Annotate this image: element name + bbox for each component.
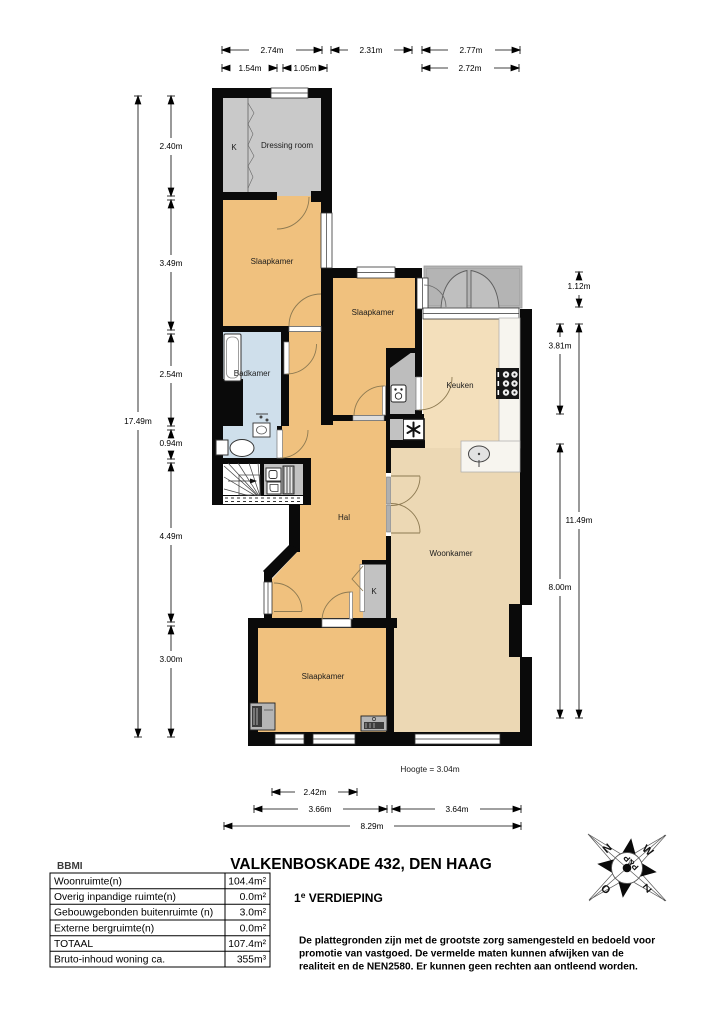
svg-text:2.42m: 2.42m bbox=[303, 787, 326, 797]
svg-text:2.31m: 2.31m bbox=[359, 45, 382, 55]
svg-text:Keuken: Keuken bbox=[446, 381, 473, 390]
svg-text:3.0m²: 3.0m² bbox=[240, 908, 267, 919]
svg-text:VALKENBOSKADE 432, DEN HAAG: VALKENBOSKADE 432, DEN HAAG bbox=[230, 856, 492, 873]
svg-text:Badkamer: Badkamer bbox=[234, 369, 271, 378]
svg-text:1.12m: 1.12m bbox=[567, 281, 590, 291]
svg-text:1.54m: 1.54m bbox=[238, 63, 261, 73]
svg-text:realiteit en de NEN2580. Er ku: realiteit en de NEN2580. Er kunnen geen … bbox=[299, 962, 638, 973]
svg-text:Externe bergruimte(n): Externe bergruimte(n) bbox=[54, 924, 154, 935]
svg-text:4.49m: 4.49m bbox=[159, 531, 182, 541]
svg-text:2.54m: 2.54m bbox=[159, 369, 182, 379]
svg-text:104.4m²: 104.4m² bbox=[228, 877, 266, 888]
svg-text:1e VERDIEPING: 1e VERDIEPING bbox=[294, 890, 383, 905]
svg-text:1.05m: 1.05m bbox=[293, 63, 316, 73]
svg-text:0.0m²: 0.0m² bbox=[240, 892, 267, 903]
svg-text:Woonruimte(n): Woonruimte(n) bbox=[54, 877, 122, 888]
svg-text:Slaapkamer: Slaapkamer bbox=[352, 308, 395, 317]
svg-text:11.49m: 11.49m bbox=[565, 515, 592, 525]
svg-text:Slaapkamer: Slaapkamer bbox=[251, 257, 294, 266]
svg-text:0.94m: 0.94m bbox=[159, 438, 182, 448]
svg-text:Woonkamer: Woonkamer bbox=[430, 549, 473, 558]
svg-text:8.29m: 8.29m bbox=[360, 821, 383, 831]
svg-text:2.40m: 2.40m bbox=[159, 141, 182, 151]
svg-text:3.00m: 3.00m bbox=[159, 654, 182, 664]
svg-text:Slaapkamer: Slaapkamer bbox=[302, 672, 345, 681]
svg-text:2.74m: 2.74m bbox=[260, 45, 283, 55]
svg-text:K: K bbox=[231, 143, 237, 152]
svg-text:3.64m: 3.64m bbox=[445, 804, 468, 814]
svg-text:2.72m: 2.72m bbox=[458, 63, 481, 73]
svg-text:K: K bbox=[371, 587, 377, 596]
svg-text:Gebouwgebonden buitenruimte (n: Gebouwgebonden buitenruimte (n) bbox=[54, 908, 213, 919]
svg-text:3.81m: 3.81m bbox=[548, 341, 571, 351]
svg-text:TOTAAL: TOTAAL bbox=[54, 939, 93, 950]
svg-text:promotie van vastgoed. De verm: promotie van vastgoed. De vermelde maten… bbox=[299, 949, 624, 960]
svg-text:3.66m: 3.66m bbox=[308, 804, 331, 814]
svg-text:3.49m: 3.49m bbox=[159, 258, 182, 268]
svg-text:355m³: 355m³ bbox=[237, 955, 267, 966]
svg-text:De plattegronden zijn met de g: De plattegronden zijn met de grootste zo… bbox=[299, 936, 655, 947]
svg-text:2.77m: 2.77m bbox=[459, 45, 482, 55]
svg-text:0.0m²: 0.0m² bbox=[240, 924, 267, 935]
svg-text:17.49m: 17.49m bbox=[124, 416, 152, 426]
svg-text:Dressing room: Dressing room bbox=[261, 141, 313, 150]
svg-text:Hal: Hal bbox=[338, 513, 350, 522]
svg-text:BBMI: BBMI bbox=[57, 861, 83, 872]
svg-text:Bruto-inhoud woning ca.: Bruto-inhoud woning ca. bbox=[54, 955, 165, 966]
svg-text:Overig inpandige ruimte(n): Overig inpandige ruimte(n) bbox=[54, 892, 176, 903]
svg-text:Hoogte = 3.04m: Hoogte = 3.04m bbox=[400, 764, 459, 774]
svg-text:107.4m²: 107.4m² bbox=[228, 939, 266, 950]
svg-text:8.00m: 8.00m bbox=[548, 582, 571, 592]
